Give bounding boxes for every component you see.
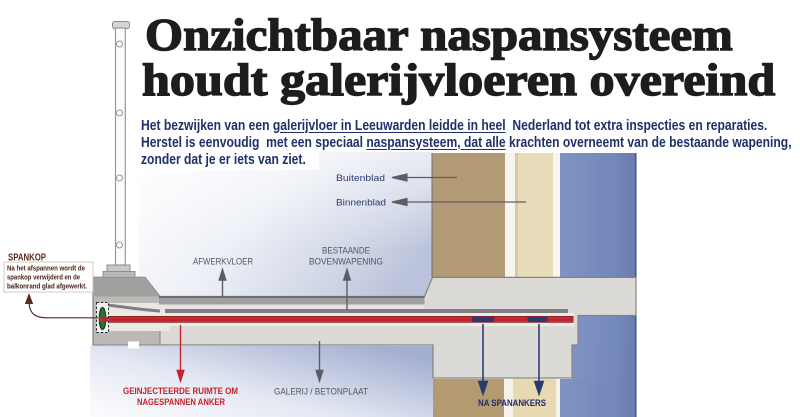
svg-text:Binnenblad: Binnenblad — [336, 198, 386, 208]
svg-text:NAGESPANNEN ANKER: NAGESPANNEN ANKER — [137, 397, 225, 408]
svg-text:spankop verwijderd en de: spankop verwijderd en de — [7, 275, 80, 282]
svg-text:NA SPANANKERS: NA SPANANKERS — [478, 398, 546, 409]
svg-text:Na het afspannen wordt de: Na het afspannen wordt de — [7, 266, 85, 273]
svg-text:AFWERKVLOER: AFWERKVLOER — [193, 257, 253, 268]
svg-text:BOVENWAPENING: BOVENWAPENING — [309, 257, 383, 268]
svg-text:Buitenblad: Buitenblad — [336, 173, 385, 183]
svg-text:GALERIJ / BETONPLAAT: GALERIJ / BETONPLAAT — [274, 387, 368, 398]
svg-text:BESTAANDE: BESTAANDE — [322, 246, 370, 257]
svg-text:GEINJECTEERDE RUIMTE OM: GEINJECTEERDE RUIMTE OM — [123, 386, 238, 397]
svg-text:balkonrand glad afgewerkt.: balkonrand glad afgewerkt. — [7, 284, 87, 291]
